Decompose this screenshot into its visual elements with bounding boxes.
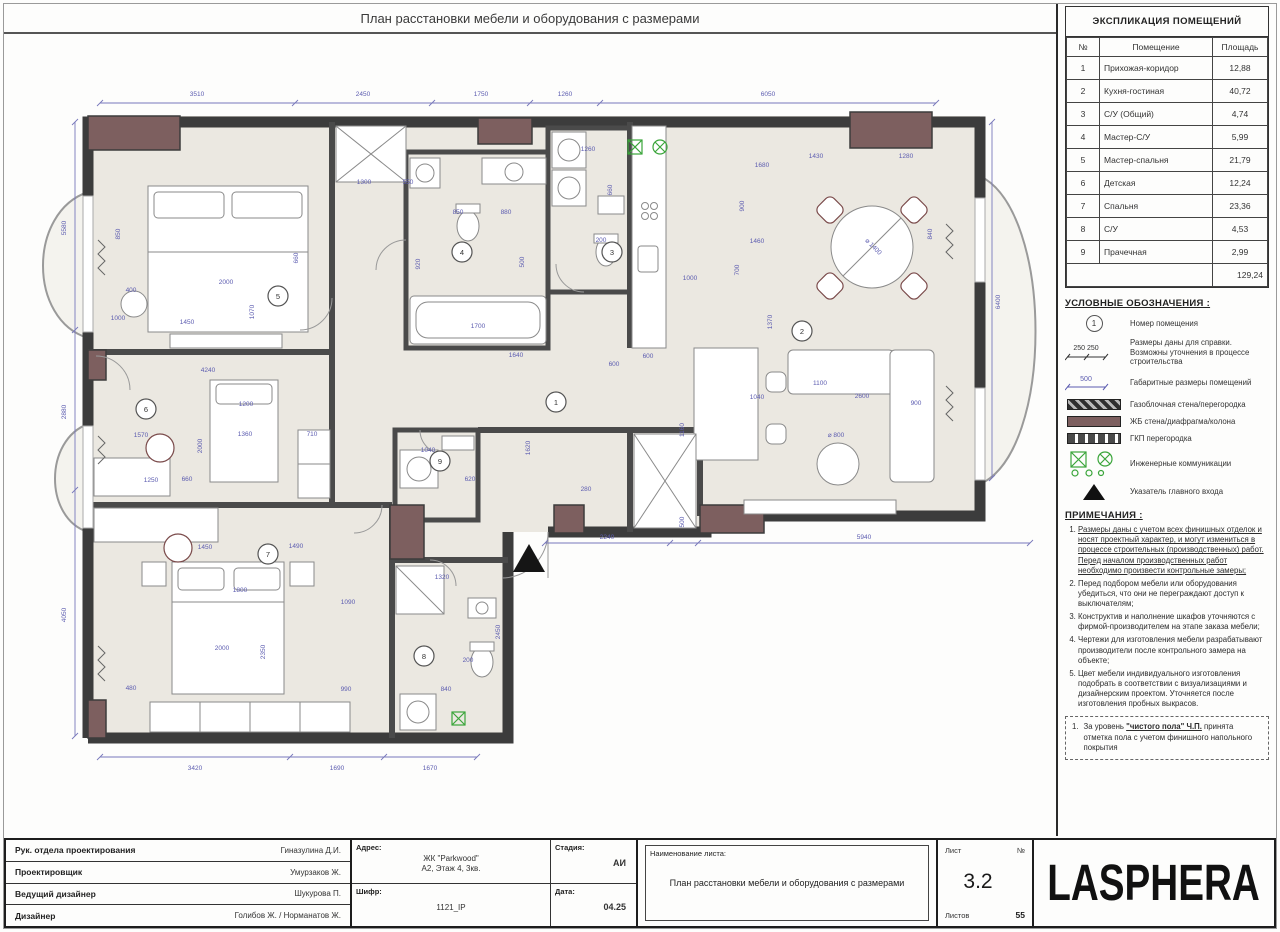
address-cipher-block: Адрес: ЖК "Parkwood"А2, Этаж 4, 3кв. Шиф… [352, 840, 550, 926]
explication-cell: Прачечная [1100, 241, 1213, 264]
drawing-sheet: 3510245017501260605055802880405064002240… [0, 0, 1280, 932]
cipher-cell: Шифр: 1121_IP [352, 884, 550, 927]
explication-cell: 2,99 [1213, 241, 1268, 264]
note-box-number: 1. [1072, 722, 1079, 754]
dimension-label: 880 [501, 209, 512, 216]
dimension-label: 1160 [679, 423, 686, 437]
entrance-arrow-icon [1083, 484, 1105, 500]
legend-item-engineering: Инженерные коммуникации [1065, 450, 1269, 478]
legend-item-overall-dims: 500 Габаритные размеры помещений [1065, 373, 1269, 393]
explication-cell: 21,79 [1213, 149, 1268, 172]
svg-text:5: 5 [276, 292, 280, 301]
person-name: Шукурова П. [294, 889, 341, 898]
legend: 1 Номер помещения 250 250 Размеры даны д… [1065, 315, 1269, 500]
dimension-label: 900 [911, 400, 922, 407]
legend-item-gasblock-wall: Газоблочная стена/перегородка [1065, 399, 1269, 410]
dimension-label: 920 [415, 258, 422, 269]
dimension-label: 1040 [750, 394, 765, 401]
dimension-label: 1570 [134, 432, 149, 439]
concrete-wall-icon [1067, 416, 1121, 427]
explication-cell: С/У (Общий) [1100, 103, 1213, 126]
room-marker: 2 [792, 321, 812, 341]
explication-cell: 7 [1067, 195, 1100, 218]
person-role: Проектировщик [15, 867, 82, 877]
stage-cell: Стадия: АИ [551, 840, 636, 884]
explication-cell: 4 [1067, 126, 1100, 149]
gkl-partition-icon [1067, 433, 1121, 444]
room-marker: 3 [602, 242, 622, 262]
dimension-label: 200 [596, 237, 607, 244]
explication-table: ЭКСПЛИКАЦИЯ ПОМЕЩЕНИЙ № Помещение Площад… [1065, 6, 1269, 288]
company-logo: LASPHERA [1034, 840, 1274, 926]
dimension-label: 1430 [809, 153, 824, 160]
column-room: Помещение [1100, 38, 1213, 57]
dimension-label: 3510 [190, 91, 205, 98]
dimension-label: 1320 [435, 574, 450, 581]
titleblock-person-row: ДизайнерГолибов Ж. / Норманатов Ж. [6, 905, 350, 926]
dimension-label: 480 [126, 685, 137, 692]
room-marker: 8 [414, 646, 434, 666]
dimension-label: 500 [519, 256, 526, 267]
floor-level-note: 1. За уровень "чистого пола" Ч.П. принят… [1065, 716, 1269, 760]
dimension-label: 2450 [356, 91, 371, 98]
explication-cell: Прихожая-коридор [1100, 57, 1213, 80]
svg-text:7: 7 [266, 550, 270, 559]
dimension-label: 4240 [201, 367, 216, 374]
dimension-label: 840 [927, 228, 934, 239]
explication-cell: 23,36 [1213, 195, 1268, 218]
room-number-icon: 1 [1086, 315, 1103, 332]
sheet-number: 3.2 [938, 870, 1018, 894]
room-marker: 7 [258, 544, 278, 564]
svg-text:500: 500 [1080, 376, 1092, 383]
sheets-total: 55 [1016, 910, 1025, 920]
explication-cell: 40,72 [1213, 80, 1268, 103]
dimension-label: 2600 [855, 393, 870, 400]
explication-cell: 8 [1067, 218, 1100, 241]
dimension-label: 5940 [857, 534, 872, 541]
stage-value: АИ [613, 858, 626, 870]
dimension-label: 1250 [144, 477, 159, 484]
personnel-table: Рук. отдела проектированияГиназулина Д.И… [6, 840, 352, 926]
column-number: № [1067, 38, 1100, 57]
sheet-name-block: Наименование листа: План расстановки меб… [638, 840, 938, 926]
svg-text:3: 3 [610, 248, 614, 257]
svg-text:9: 9 [438, 457, 442, 466]
dimension-label: 660 [293, 252, 300, 263]
explication-row: 2Кухня-гостиная40,72 [1067, 80, 1268, 103]
legend-item-entrance: Указатель главного входа [1065, 484, 1269, 500]
dimension-label: 1200 [239, 401, 254, 408]
dimension-label: 550 [403, 179, 414, 186]
dimension-label: 660 [607, 184, 614, 195]
dimension-label: 2000 [215, 645, 230, 652]
explication-cell: 9 [1067, 241, 1100, 264]
explication-cell: 12,88 [1213, 57, 1268, 80]
gasblock-wall-icon [1067, 399, 1121, 410]
dimension-label: 660 [182, 476, 193, 483]
dimension-label: 2000 [219, 279, 234, 286]
explication-row: 1Прихожая-коридор12,88 [1067, 57, 1268, 80]
svg-text:1: 1 [554, 398, 558, 407]
dimension-label: 1100 [813, 380, 827, 387]
page-title: План расстановки мебели и оборудования с… [361, 11, 700, 26]
engineering-icon [1065, 450, 1123, 478]
dimension-label: 1070 [249, 304, 256, 319]
dimension-label: 1260 [581, 146, 596, 153]
dimension-label: 5580 [61, 220, 68, 235]
dimension-label: 1000 [683, 275, 698, 282]
cipher-value: 1121_IP [436, 903, 465, 913]
dimension-label: 990 [341, 686, 352, 693]
dimension-label: 1700 [471, 323, 486, 330]
dimension-label: 1490 [289, 543, 304, 550]
notes: ПРИМЕЧАНИЯ : Размеры даны с учетом всех … [1065, 510, 1269, 760]
room-marker: 9 [430, 451, 450, 471]
svg-text:6: 6 [144, 405, 148, 414]
dimension-label: 1800 [233, 587, 248, 594]
right-panel: ЭКСПЛИКАЦИЯ ПОМЕЩЕНИЙ № Помещение Площад… [1056, 4, 1276, 836]
explication-total-row: 129,24 [1067, 264, 1268, 287]
note-item: Цвет мебели индивидуального изготовления… [1078, 669, 1269, 710]
person-role: Ведущий дизайнер [15, 889, 96, 899]
explication-row: 4Мастер-С/У5,99 [1067, 126, 1268, 149]
sheet-title-bar: План расстановки мебели и оборудования с… [4, 4, 1056, 34]
date-cell: Дата: 04.25 [551, 884, 636, 927]
explication-cell: 2 [1067, 80, 1100, 103]
titleblock-person-row: Ведущий дизайнерШукурова П. [6, 884, 350, 906]
dimension-label: 1670 [423, 765, 438, 772]
svg-text:2: 2 [800, 327, 804, 336]
room-marker: 4 [452, 242, 472, 262]
title-block: Рук. отдела проектированияГиназулина Д.И… [4, 838, 1276, 928]
dimension-label: 620 [465, 476, 476, 483]
note-box-text: За уровень "чистого пола" Ч.П. принята о… [1084, 722, 1262, 754]
explication-cell: 4,53 [1213, 218, 1268, 241]
explication-cell: 5 [1067, 149, 1100, 172]
note-item: Чертежи для изготовления мебели разрабат… [1078, 635, 1269, 665]
dimension-label: 1000 [111, 315, 126, 322]
dimension-label: 700 [734, 264, 741, 275]
dimension-label: 4050 [61, 607, 68, 622]
dimension-label: 1460 [750, 238, 765, 245]
explication-columns: № Помещение Площадь [1067, 38, 1268, 57]
dimension-label: 6050 [761, 91, 776, 98]
legend-item-gkl-wall: ГКП перегородка [1065, 433, 1269, 444]
dimension-label: 400 [126, 287, 137, 294]
notes-header: ПРИМЕЧАНИЯ : [1065, 510, 1269, 521]
explication-cell: 4,74 [1213, 103, 1268, 126]
dimension-label: 2240 [600, 534, 615, 541]
address-line2: А2, Этаж 4, 3кв. [422, 864, 481, 874]
dimension-label: 1090 [341, 599, 356, 606]
column-area: Площадь [1213, 38, 1268, 57]
person-role: Рук. отдела проектирования [15, 845, 135, 855]
explication-cell: 1 [1067, 57, 1100, 80]
svg-text:250 250: 250 250 [1073, 345, 1098, 352]
legend-item-reference-dims: 250 250 Размеры даны для справки. Возмож… [1065, 338, 1269, 367]
floor-plan: 3510245017501260605055802880405064002240… [0, 0, 1056, 836]
dimension-label: 2350 [260, 644, 267, 659]
explication-cell: Кухня-гостиная [1100, 80, 1213, 103]
dimension-label: 1360 [238, 431, 253, 438]
explication-row: 3С/У (Общий)4,74 [1067, 103, 1268, 126]
explication-row: 7Спальня23,36 [1067, 195, 1268, 218]
svg-text:8: 8 [422, 652, 426, 661]
dimension-label: 2000 [197, 438, 204, 453]
dimension-label: 850 [115, 228, 122, 239]
dimension-label: 2450 [495, 624, 502, 639]
dimension-label: 840 [441, 686, 452, 693]
sheet-number-block: Лист № 3.2 Листов 55 [938, 840, 1034, 926]
overall-dimension-icon: 500 [1065, 373, 1123, 393]
dimension-label: 1300 [357, 179, 372, 186]
total-area: 129,24 [1213, 264, 1268, 287]
explication-row: 8С/У4,53 [1067, 218, 1268, 241]
explication-cell: С/У [1100, 218, 1213, 241]
explication-row: 6Детская12,24 [1067, 172, 1268, 195]
dimension-label: 200 [463, 657, 474, 664]
dimension-label: 1280 [899, 153, 914, 160]
dimension-label: 6400 [995, 294, 1002, 309]
dimension-label: 900 [739, 200, 746, 211]
explication-cell: Детская [1100, 172, 1213, 195]
address-cell: Адрес: ЖК "Parkwood"А2, Этаж 4, 3кв. [352, 840, 550, 884]
dimension-label: 1680 [755, 162, 770, 169]
explication-cell: 12,24 [1213, 172, 1268, 195]
plan-area: 3510245017501260605055802880405064002240… [0, 0, 1056, 836]
dimension-label: 1450 [180, 319, 195, 326]
dimension-label: 1450 [198, 544, 213, 551]
dimension-label: 600 [609, 361, 620, 368]
dimension-label: 850 [453, 209, 464, 216]
stage-date-block: Стадия: АИ Дата: 04.25 [550, 840, 638, 926]
explication-cell: 6 [1067, 172, 1100, 195]
address-line1: ЖК "Parkwood" [422, 854, 481, 864]
room-marker: 6 [136, 399, 156, 419]
explication-cell: 5,99 [1213, 126, 1268, 149]
dimension-label: 500 [679, 516, 686, 527]
explication-cell: Мастер-спальня [1100, 149, 1213, 172]
dimension-label: 3420 [188, 765, 203, 772]
dimension-label: 1260 [558, 91, 573, 98]
explication-cell: 3 [1067, 103, 1100, 126]
dimension-label: 600 [643, 353, 654, 360]
dimension-label: 280 [581, 486, 592, 493]
explication-cell: Мастер-С/У [1100, 126, 1213, 149]
explication-header: ЭКСПЛИКАЦИЯ ПОМЕЩЕНИЙ [1066, 7, 1268, 37]
explication-row: 9Прачечная2,99 [1067, 241, 1268, 264]
note-item: Размеры даны с учетом всех финишных отде… [1078, 525, 1269, 576]
person-name: Гиназулина Д.И. [281, 846, 341, 855]
dimension-label: 1370 [767, 314, 774, 329]
dimension-label: 1640 [509, 352, 524, 359]
sheet-name: План расстановки мебели и оборудования с… [660, 878, 915, 888]
dimension-label: ⌀ 800 [828, 432, 845, 439]
room-marker: 1 [546, 392, 566, 412]
note-item: Конструктив и наполнение шкафов уточняют… [1078, 612, 1269, 632]
person-name: Умурзаков Ж. [290, 868, 341, 877]
date-value: 04.25 [603, 902, 626, 914]
titleblock-person-row: Рук. отдела проектированияГиназулина Д.И… [6, 840, 350, 862]
dimension-label: 1690 [330, 765, 345, 772]
dimension-label: 710 [307, 431, 318, 438]
titleblock-person-row: ПроектировщикУмурзаков Ж. [6, 862, 350, 884]
legend-header: УСЛОВНЫЕ ОБОЗНАЧЕНИЯ : [1065, 298, 1269, 309]
room-marker: 5 [268, 286, 288, 306]
svg-text:4: 4 [460, 248, 464, 257]
explication-row: 5Мастер-спальня21,79 [1067, 149, 1268, 172]
note-item: Перед подбором мебели или оборудования у… [1078, 579, 1269, 609]
dimension-label: 2880 [61, 404, 68, 419]
person-role: Дизайнер [15, 911, 55, 921]
legend-item-concrete-wall: ЖБ стена/диафрагма/колона [1065, 416, 1269, 427]
person-name: Голибов Ж. / Норманатов Ж. [235, 911, 341, 920]
dimension-label: 1750 [474, 91, 489, 98]
explication-cell: Спальня [1100, 195, 1213, 218]
legend-item-room-number: 1 Номер помещения [1065, 315, 1269, 332]
dimension-label: 1620 [525, 440, 532, 455]
reference-dimension-icon: 250 250 [1065, 342, 1123, 364]
